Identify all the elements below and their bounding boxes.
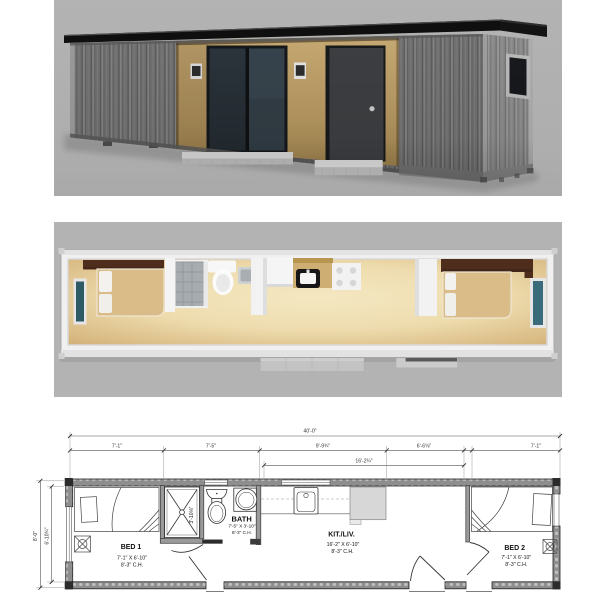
svg-text:BATH: BATH <box>232 515 252 524</box>
svg-text:16'-2" X 6'-10": 16'-2" X 6'-10" <box>327 542 360 548</box>
svg-text:7'-5": 7'-5" <box>206 444 216 450</box>
svg-text:6'-10¾": 6'-10¾" <box>45 527 51 544</box>
svg-text:BED 1: BED 1 <box>121 544 142 551</box>
svg-text:16'-2¼": 16'-2¼" <box>355 459 372 465</box>
svg-text:BED 2: BED 2 <box>504 545 525 552</box>
svg-text:9'-9¾": 9'-9¾" <box>316 444 331 450</box>
svg-text:40'-0": 40'-0" <box>304 428 317 434</box>
svg-text:8'-3" C.H.: 8'-3" C.H. <box>331 549 353 555</box>
svg-text:7'-1": 7'-1" <box>112 444 122 450</box>
svg-text:KIT./LIV.: KIT./LIV. <box>328 532 355 539</box>
svg-text:3'-10⅛": 3'-10⅛" <box>189 506 195 523</box>
svg-text:8'-3" C.H.: 8'-3" C.H. <box>121 563 143 569</box>
svg-text:7'-1": 7'-1" <box>531 444 541 450</box>
svg-text:8'-0": 8'-0" <box>33 531 39 541</box>
svg-text:8'-3" C.H.: 8'-3" C.H. <box>232 530 252 535</box>
svg-text:7'-1" X 6'-10": 7'-1" X 6'-10" <box>117 556 147 562</box>
svg-text:7'-5" X 3'-10": 7'-5" X 3'-10" <box>228 524 255 529</box>
svg-text:7'-1" X 6'-10": 7'-1" X 6'-10" <box>501 555 531 561</box>
svg-text:8'-3" C.H.: 8'-3" C.H. <box>505 562 527 568</box>
svg-text:6'-6⅝": 6'-6⅝" <box>417 444 432 450</box>
